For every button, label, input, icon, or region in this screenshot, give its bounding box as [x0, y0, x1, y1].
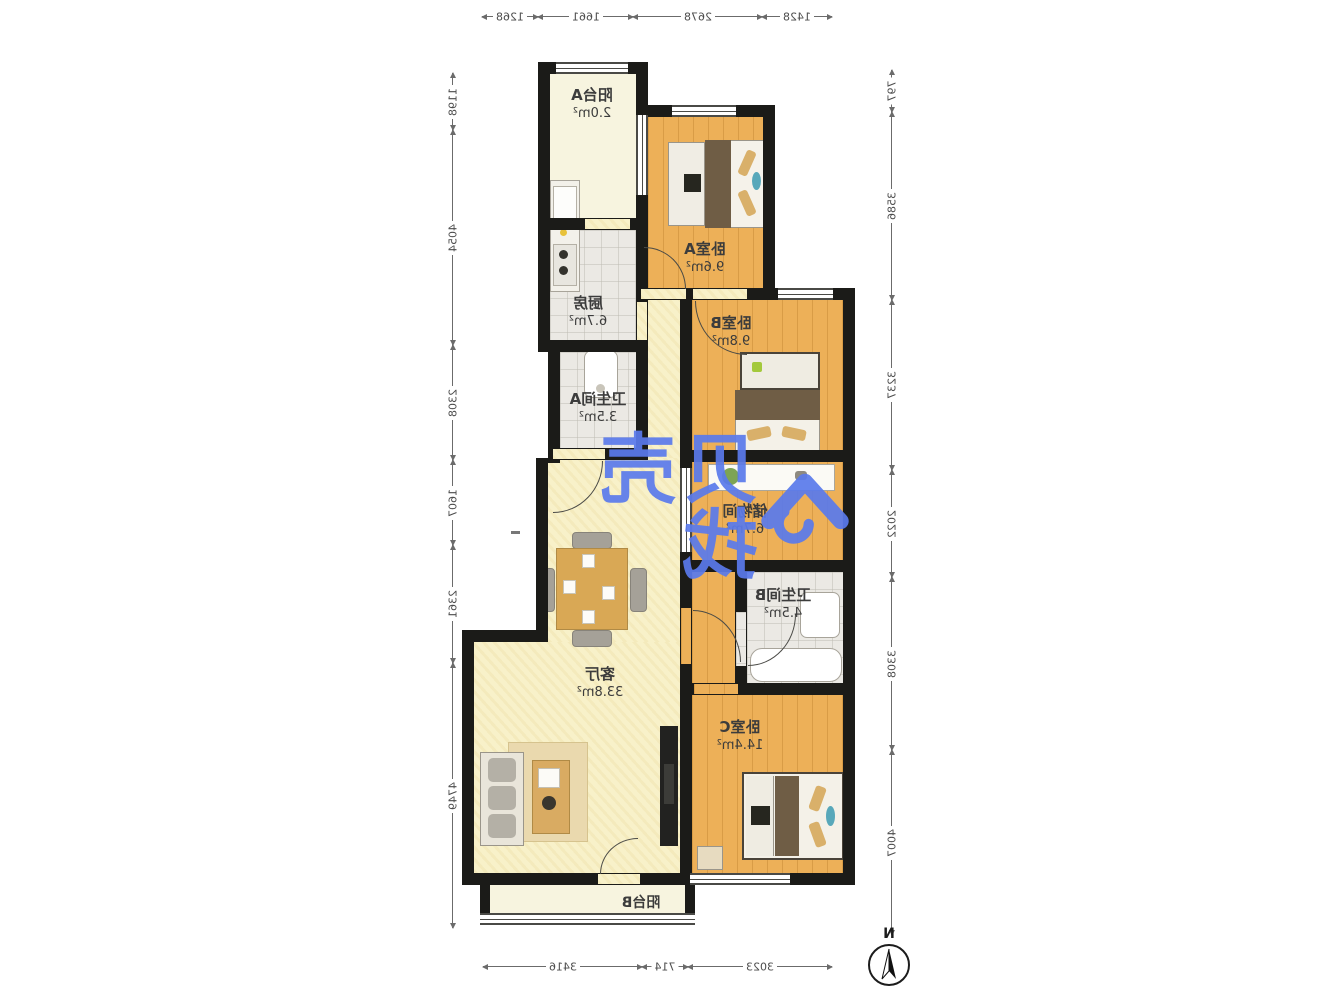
living-table-item	[542, 796, 556, 810]
wall-step	[462, 630, 548, 642]
dim-right-2: 3586	[891, 112, 892, 300]
room-area: 14.4m²	[694, 738, 786, 755]
kitchen-sink-dot	[560, 229, 567, 236]
wall-left-lower	[462, 630, 474, 885]
dim-value: 797	[886, 78, 899, 105]
label-balcony-b: 阳台B	[598, 894, 684, 912]
bed-c-blanket	[775, 776, 799, 856]
dim-value: 714	[652, 961, 679, 974]
room-name: 卧室A	[650, 240, 760, 260]
opening-bed-b-door	[693, 289, 747, 299]
opening-balcony-b-door	[598, 874, 640, 884]
room-area: 9.8m²	[688, 334, 774, 351]
window-bed-a-top	[672, 105, 736, 117]
bed-c-cushion	[826, 806, 835, 826]
dim-value: 1607	[447, 486, 460, 520]
dim-value: 3416	[546, 961, 580, 974]
dim-left-4: 1607	[452, 460, 453, 545]
room-name: 阳台B	[598, 894, 684, 912]
room-area: 33.8m²	[548, 685, 652, 702]
room-name: 阳台A	[548, 86, 636, 106]
dim-value: 3308	[886, 647, 899, 681]
window-bed-b-top	[778, 288, 833, 300]
dining-chair-bottom	[572, 630, 612, 647]
wall-kitchen-bath-divider	[548, 340, 648, 352]
room-area: 3.5m²	[556, 410, 640, 427]
watermark-beike: 贝壳找	[548, 450, 852, 565]
opening-bed-c-door	[694, 684, 738, 694]
compass-needle-icon	[870, 946, 908, 984]
wall-bed-a-right	[763, 105, 775, 300]
dim-value: 2022	[886, 507, 899, 541]
living-sofa-cushion-3	[488, 814, 516, 838]
room-area: 9.6m²	[650, 260, 760, 277]
dim-left-1: 1198	[452, 73, 453, 130]
opening-bed-a-door	[641, 289, 686, 299]
dim-left-6: 4749	[452, 663, 453, 928]
watermark-artifact	[511, 531, 520, 534]
dim-right-5: 3308	[891, 577, 892, 750]
room-name: 卧室B	[688, 314, 774, 334]
dim-value: 2361	[447, 587, 460, 621]
label-bed-b: 卧室B 9.8m²	[688, 314, 774, 350]
room-area: 2.0m²	[548, 106, 636, 123]
dim-value: 4007	[886, 826, 899, 860]
label-bed-c: 卧室C 14.4m²	[694, 718, 786, 754]
dim-bottom-3: 3023	[688, 966, 832, 967]
dim-left-5: 2361	[452, 545, 453, 663]
dim-left-2: 4054	[452, 130, 453, 345]
dim-value: 3237	[886, 368, 899, 402]
label-bath-a: 卫生间A 3.5m²	[556, 390, 640, 426]
dim-value: 2308	[447, 386, 460, 420]
opening-hall-lower-door	[681, 608, 691, 664]
window-bed-c-bottom	[690, 873, 790, 885]
room-name: 厨房	[545, 294, 631, 314]
bed-a-blanket	[705, 140, 731, 228]
dim-value: 1661	[569, 11, 603, 24]
label-bed-a: 卧室A 9.6m²	[650, 240, 760, 276]
bed-a-cushion	[752, 172, 761, 190]
north-label: N	[867, 926, 911, 942]
living-tv-detail	[664, 764, 674, 804]
room-name: 卧室C	[694, 718, 786, 738]
dim-right-4: 2022	[891, 470, 892, 577]
label-balcony-a: 阳台A 2.0m²	[548, 86, 636, 122]
bed-c-tv-panel	[751, 806, 770, 825]
bed-b-tv-dot	[752, 362, 762, 372]
label-living: 客厅 33.8m²	[548, 665, 652, 701]
dim-right-1: 797	[891, 70, 892, 112]
dim-value: 3586	[886, 189, 899, 223]
dim-top-2: 1661	[538, 16, 633, 17]
compass-ring	[868, 944, 910, 986]
room-name: 卫生间A	[556, 390, 640, 410]
wall-left-mid	[536, 458, 548, 642]
dim-top-4: 1428	[762, 16, 832, 17]
dining-plate-3	[602, 586, 615, 600]
dim-value: 1268	[493, 11, 527, 24]
watermark-text: 贝壳找	[548, 432, 758, 584]
dining-plate-4	[582, 610, 595, 624]
bed-c-nightstand	[697, 846, 723, 870]
north-compass: N	[867, 926, 911, 986]
window-balcony-a-side	[636, 115, 648, 195]
living-sofa-cushion-2	[488, 786, 516, 810]
opening-kitchen-hall	[637, 302, 647, 340]
dim-value: 1428	[780, 11, 814, 24]
dim-value: 4054	[447, 221, 460, 255]
living-sofa-cushion-1	[488, 758, 516, 782]
opening-balcony-a-kitchen	[585, 219, 630, 229]
label-kitchen: 厨房 6.7m²	[545, 294, 631, 330]
beike-house-logo-icon	[758, 461, 852, 555]
dim-value: 4749	[447, 779, 460, 813]
room-area: 4.5m²	[748, 606, 818, 623]
dim-value: 1198	[447, 85, 460, 119]
kitchen-burner-1	[559, 250, 568, 259]
room-name: 客厅	[548, 665, 652, 685]
dim-left-3: 2308	[452, 345, 453, 460]
dim-bottom-2: 714	[642, 966, 688, 967]
living-table-tray	[538, 768, 560, 788]
wall-right	[843, 288, 855, 885]
dim-right-3: 3237	[891, 300, 892, 470]
dim-value: 2678	[681, 11, 715, 24]
label-bath-b: 卫生间B 4.5m²	[748, 586, 818, 622]
dim-bottom-1: 3416	[483, 966, 642, 967]
dim-value: 3023	[743, 961, 777, 974]
room-name: 卫生间B	[748, 586, 818, 606]
bed-a-tv-panel	[684, 174, 701, 192]
bed-b-blanket	[735, 390, 820, 420]
kitchen-burner-2	[559, 266, 568, 275]
window-balcony-a-top	[556, 62, 628, 74]
room-area: 6.7m²	[545, 314, 631, 331]
dim-top-3: 2678	[633, 16, 762, 17]
wall-living-bottom	[462, 873, 692, 885]
dim-right-6: 4007	[891, 750, 892, 935]
dim-top-1: 1268	[482, 16, 538, 17]
window-balcony-b-bottom	[480, 913, 695, 925]
floorplan-canvas: 阳台A 2.0m² 厨房 6.7m² 卫生间A 3.5m² 卧室A 9.6m² …	[0, 0, 1333, 991]
